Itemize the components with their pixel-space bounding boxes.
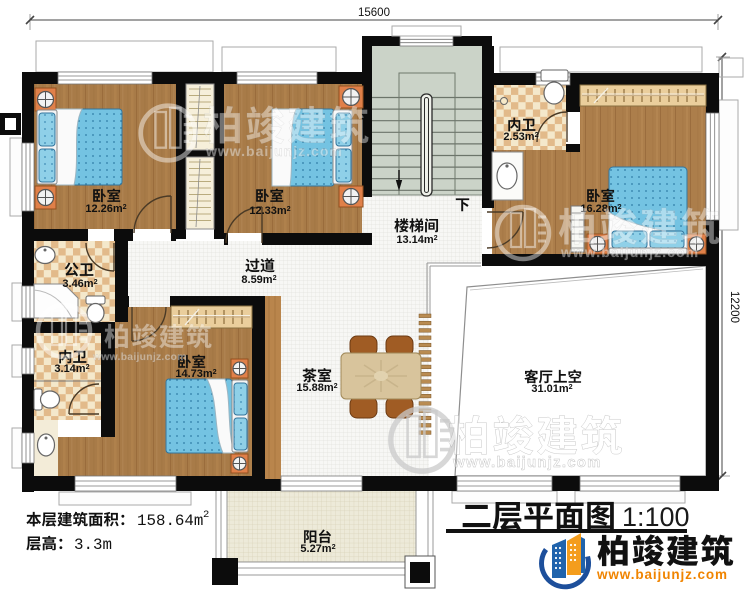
svg-text:2.53m2: 2.53m2 (503, 130, 538, 143)
svg-text:2: 2 (203, 509, 209, 521)
svg-text:14.73m2: 14.73m2 (175, 367, 216, 380)
svg-text:3.14m2: 3.14m2 (54, 362, 89, 375)
svg-text:12.26m2: 12.26m2 (85, 202, 126, 215)
svg-text:15.88m2: 15.88m2 (296, 381, 337, 394)
svg-text:3.3m: 3.3m (74, 536, 112, 554)
svg-text:www.baijunjz.com: www.baijunjz.com (452, 454, 602, 471)
svg-text:3.46m2: 3.46m2 (62, 277, 97, 290)
svg-text:www.baijunjz.com: www.baijunjz.com (205, 143, 343, 159)
svg-text:158.64m: 158.64m (137, 512, 203, 530)
svg-text:5.27m2: 5.27m2 (300, 542, 335, 555)
svg-text:12200: 12200 (728, 291, 740, 323)
svg-text:15600: 15600 (358, 7, 390, 19)
svg-text:31.01m2: 31.01m2 (531, 382, 572, 395)
svg-text:8.59m2: 8.59m2 (241, 273, 276, 286)
svg-text:12.33m2: 12.33m2 (249, 204, 290, 217)
svg-text:13.14m2: 13.14m2 (396, 233, 437, 246)
svg-text:www.baijunjz.com: www.baijunjz.com (596, 567, 728, 582)
svg-text:www.baijunjz.com: www.baijunjz.com (92, 352, 187, 363)
svg-text:1:100: 1:100 (622, 502, 690, 532)
svg-text:www.baijunjz.com: www.baijunjz.com (560, 245, 699, 260)
